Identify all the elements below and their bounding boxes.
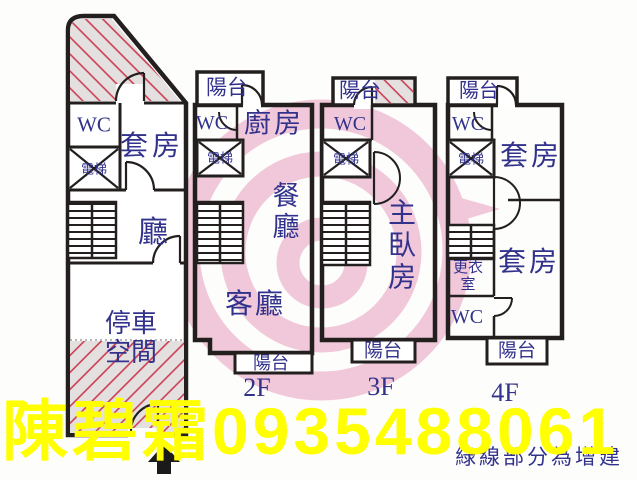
room-label-elevator-2f: 電梯 [207, 152, 233, 165]
room-label-parking-1f: 停車空間 [101, 309, 161, 367]
room-label-balcony-top-2f: 陽台 [206, 78, 248, 99]
room-label-dining-2f: 餐廳 [270, 181, 297, 243]
room-label-elevator-1f: 電梯 [81, 163, 107, 176]
room-label-balcony-top-3f: 陽台 [339, 81, 381, 102]
stairs-icon [197, 202, 243, 263]
room-label-hall-1f: 廳 [138, 218, 168, 248]
room-label-suite-1f: 套房 [120, 133, 184, 161]
room-label-balcony-top-4f: 陽台 [459, 81, 499, 101]
room-label-wc-bottom-4f: WC [451, 307, 483, 327]
room-label-elevator-4f: 電梯 [458, 153, 484, 166]
room-label-balcony-bottom-3f: 陽台 [364, 342, 402, 361]
stairs-icon [322, 202, 370, 265]
room-label-elevator-3f: 電梯 [333, 153, 359, 166]
room-label-suite-top-4f: 套房 [500, 143, 562, 171]
floorplan-image: WC 電梯 套房 廳 停車空間 陽台 WC 廚房 電梯 餐廳 客廳 陽台 2F … [0, 0, 637, 480]
room-label-living-2f: 客廳 [225, 291, 285, 319]
room-label-balcony-bottom-4f: 陽台 [498, 342, 536, 361]
stairs-icon [68, 202, 116, 258]
room-label-suite-bottom-4f: 套房 [498, 249, 560, 277]
room-label-wc-2f: WC [196, 113, 228, 133]
contact-watermark: 陳碧霜0935488061 [2, 398, 619, 464]
door-arc [494, 203, 520, 229]
door-arc [494, 298, 512, 316]
room-label-wc-top-4f: WC [452, 114, 484, 134]
room-label-master-bedroom-3f: 主臥房 [385, 198, 413, 294]
room-label-wc-1f: WC [77, 115, 111, 136]
stairs-icon [448, 225, 494, 259]
plan-ground-floor [68, 16, 186, 439]
room-label-kitchen-2f: 廚房 [244, 111, 304, 138]
room-label-wc-3f: WC [334, 114, 366, 134]
room-label-balcony-bottom-2f: 陽台 [253, 354, 289, 372]
room-label-dressing-room-4f: 更衣室 [451, 260, 485, 294]
